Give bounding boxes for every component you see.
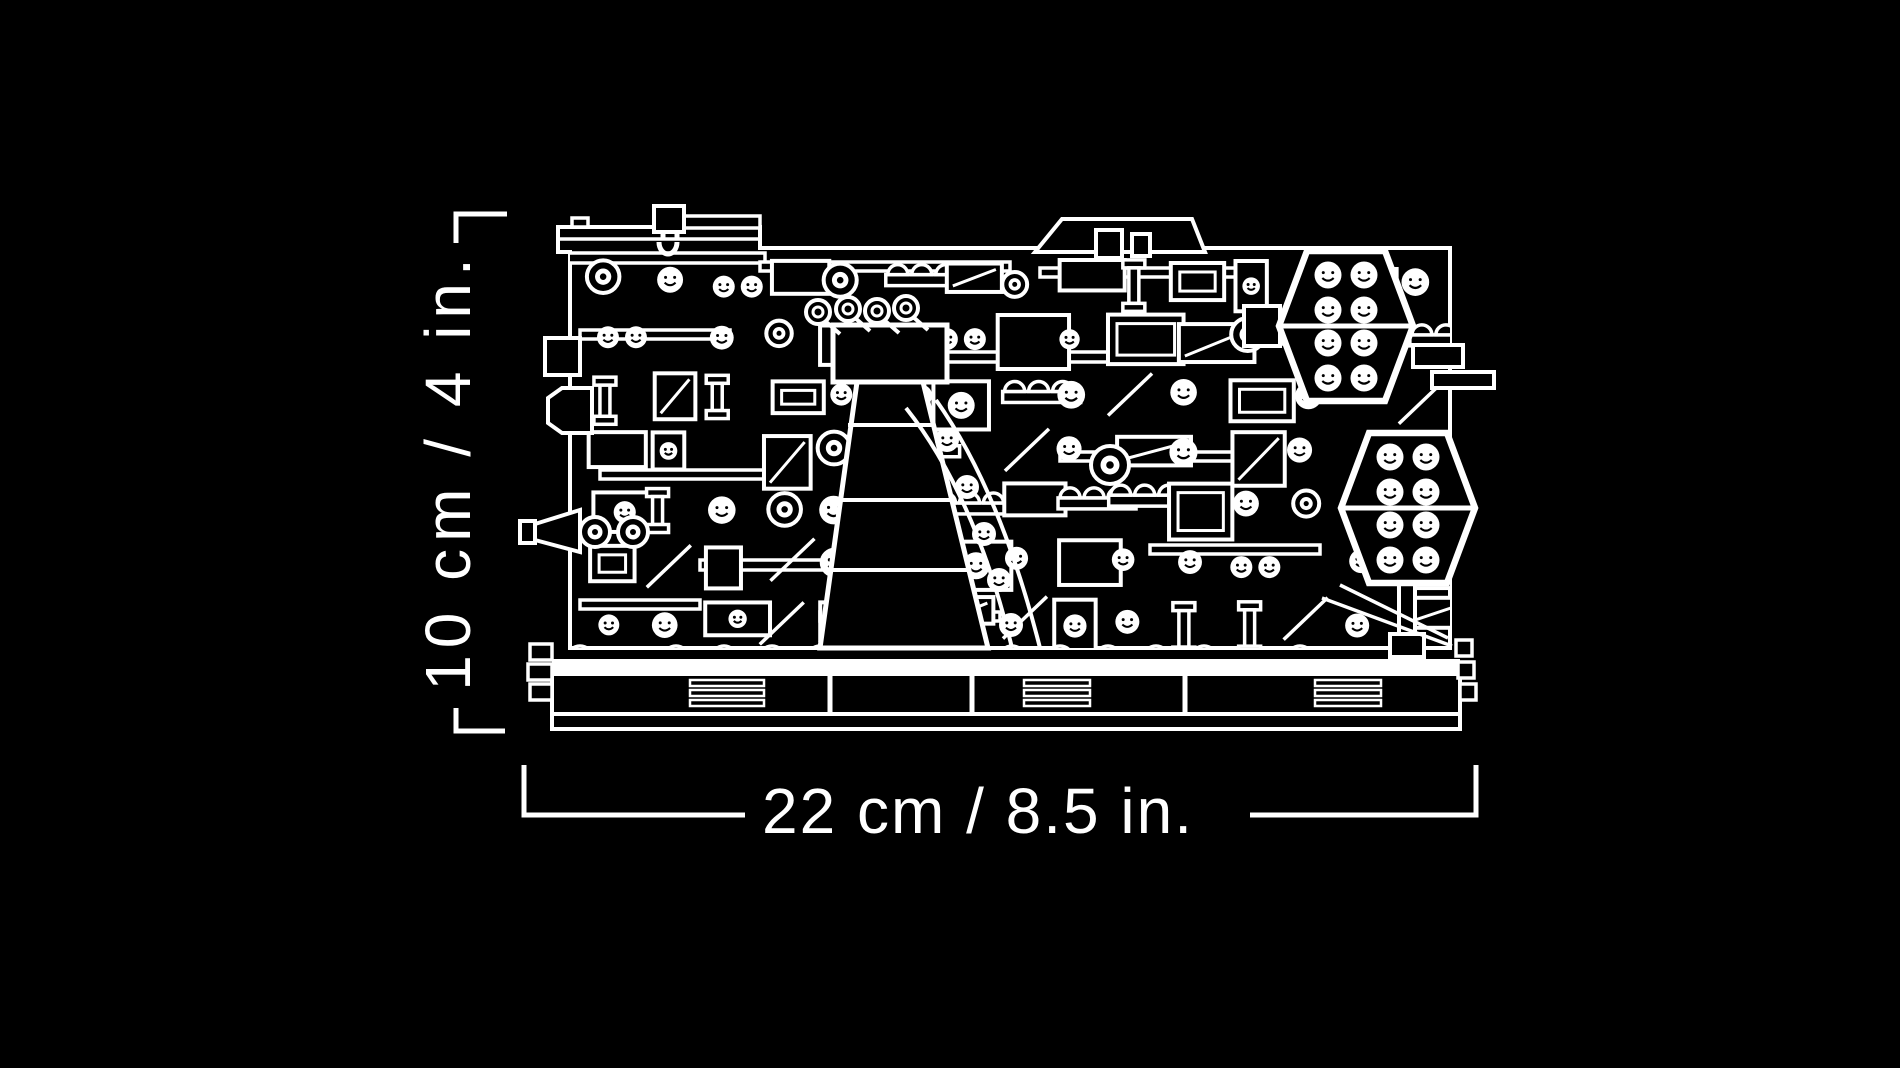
height-dimension: 10 cm / 4 in. bbox=[412, 214, 507, 731]
dimension-diagram-canvas: 10 cm / 4 in. 22 cm / 8.5 in. bbox=[0, 0, 1900, 1068]
hex-dish-lower bbox=[1341, 433, 1475, 583]
product-dimension-diagram: 10 cm / 4 in. 22 cm / 8.5 in. bbox=[0, 0, 1900, 1068]
lego-diorama-line-art-icon bbox=[520, 206, 1494, 729]
display-base bbox=[528, 640, 1476, 729]
hex-dish-upper bbox=[1279, 251, 1413, 401]
width-dimension: 22 cm / 8.5 in. bbox=[524, 765, 1476, 847]
width-dimension-label: 22 cm / 8.5 in. bbox=[762, 775, 1194, 847]
height-dimension-label: 10 cm / 4 in. bbox=[412, 251, 484, 691]
side-nozzle bbox=[548, 388, 592, 433]
side-cone bbox=[535, 510, 580, 552]
crane-hook-icon bbox=[654, 206, 684, 232]
